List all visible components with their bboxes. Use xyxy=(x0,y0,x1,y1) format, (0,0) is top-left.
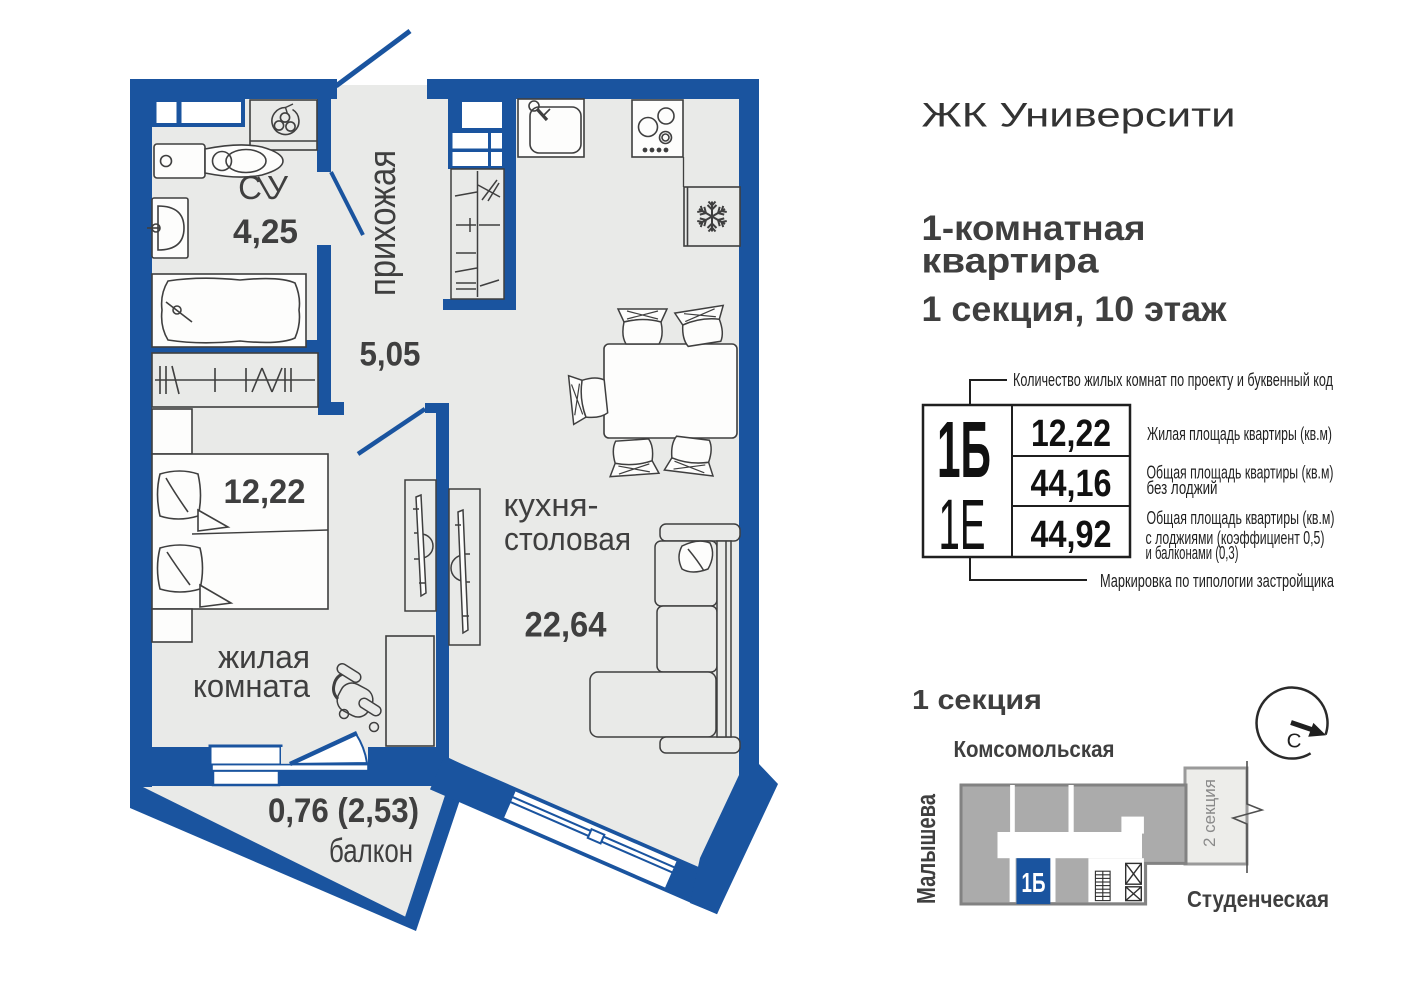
svg-text:1Б: 1Б xyxy=(1022,867,1046,898)
svg-text:1Е: 1Е xyxy=(939,486,986,565)
svg-text:и балконами (0,3): и балконами (0,3) xyxy=(1146,543,1239,563)
svg-text:Количество жилых комнат по про: Количество жилых комнат по проекту и бук… xyxy=(1013,370,1333,390)
svg-text:без лоджий: без лоджий xyxy=(1147,478,1218,498)
svg-text:столовая: столовая xyxy=(504,521,631,557)
svg-text:12,22: 12,22 xyxy=(224,473,306,511)
svg-text:2 секция: 2 секция xyxy=(1200,779,1219,847)
svg-text:С: С xyxy=(1287,730,1302,753)
svg-text:0,76 (2,53): 0,76 (2,53) xyxy=(268,792,419,830)
svg-text:1 секция, 10 этаж: 1 секция, 10 этаж xyxy=(922,290,1228,329)
svg-text:Общая площадь квартиры (кв.м): Общая площадь квартиры (кв.м) xyxy=(1147,508,1335,528)
svg-text:С: С xyxy=(238,169,262,206)
svg-text:Жилая площадь квартиры (кв.м): Жилая площадь квартиры (кв.м) xyxy=(1147,424,1332,444)
svg-text:Студенческая: Студенческая xyxy=(1187,886,1329,912)
svg-text:12,22: 12,22 xyxy=(1031,413,1111,455)
svg-text:22,64: 22,64 xyxy=(525,606,607,645)
svg-text:1Б: 1Б xyxy=(937,405,991,494)
svg-text:Малышева: Малышева xyxy=(913,793,941,904)
svg-text:кухня-: кухня- xyxy=(504,487,599,523)
svg-text:1 секция: 1 секция xyxy=(912,684,1042,715)
svg-text:4,25: 4,25 xyxy=(233,213,298,251)
svg-text:квартира: квартира xyxy=(922,242,1100,281)
svg-text:Маркировка по типологии застро: Маркировка по типологии застройщика xyxy=(1100,571,1335,591)
svg-text:У: У xyxy=(267,169,289,206)
svg-text:44,92: 44,92 xyxy=(1031,514,1112,556)
svg-text:5,05: 5,05 xyxy=(360,336,421,374)
svg-text:балкон: балкон xyxy=(329,833,413,870)
svg-text:44,16: 44,16 xyxy=(1031,463,1112,505)
svg-text:Комсомольская: Комсомольская xyxy=(954,736,1115,762)
svg-text:комната: комната xyxy=(193,668,310,704)
svg-text:прихожая: прихожая xyxy=(362,150,404,296)
svg-text:ЖК Университи: ЖК Университи xyxy=(922,97,1236,135)
